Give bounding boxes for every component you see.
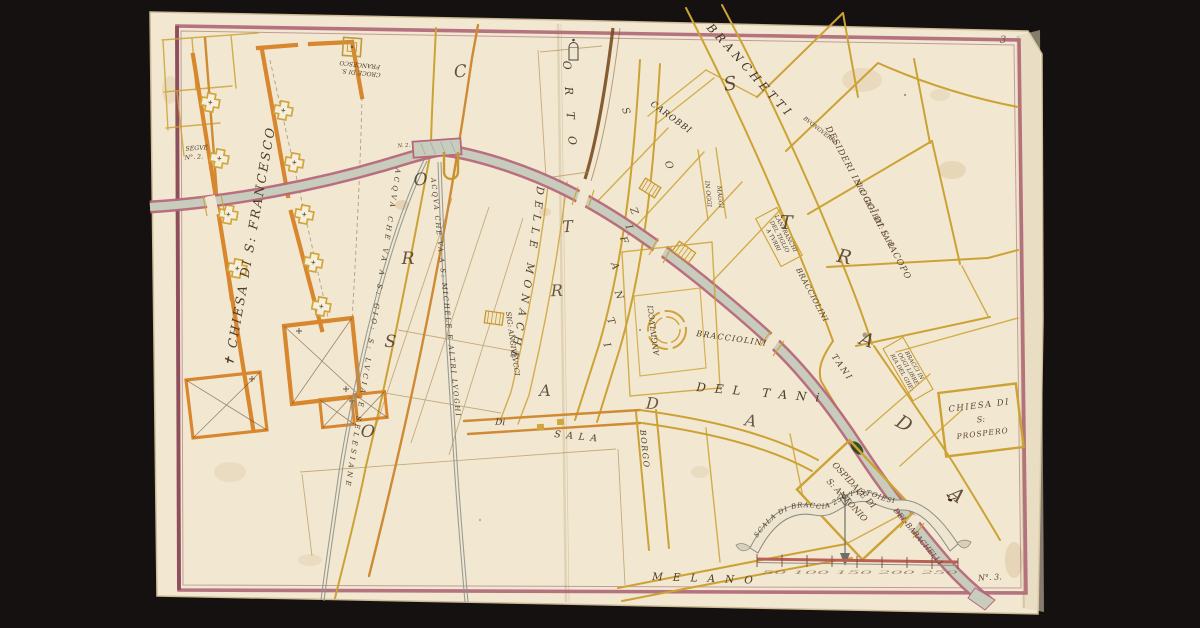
street-letter: R <box>401 249 415 269</box>
bridge-gap <box>210 196 214 215</box>
canal-basin <box>413 138 462 157</box>
small-house <box>557 419 564 425</box>
street-letter: A <box>537 381 551 400</box>
page-number: 3 <box>1000 35 1006 46</box>
street-letter: C <box>453 61 468 82</box>
segue-note: N°. 2. <box>183 153 203 161</box>
hatched-building <box>484 311 503 325</box>
bridge-gap <box>580 188 586 206</box>
street-letter: R <box>549 281 563 300</box>
street-letter: T <box>779 212 794 234</box>
street-letter: O <box>359 421 376 443</box>
street-letter: S <box>384 332 397 353</box>
prospero-line: S: <box>976 415 986 425</box>
scale-tick-numbers: 50 100 150 200 250 <box>762 570 958 576</box>
street-letter: D <box>644 394 659 414</box>
small-house <box>537 424 544 430</box>
di-label: Di <box>494 418 506 429</box>
antique-map-photo: 3 SEGVE N°. 2. N. 2. N°. 3. CROCE DI S. … <box>0 0 1200 628</box>
canal-number: N°. 3. <box>977 572 1002 582</box>
canal-number: N. 2. <box>397 143 411 150</box>
street-letter: O <box>413 170 428 191</box>
